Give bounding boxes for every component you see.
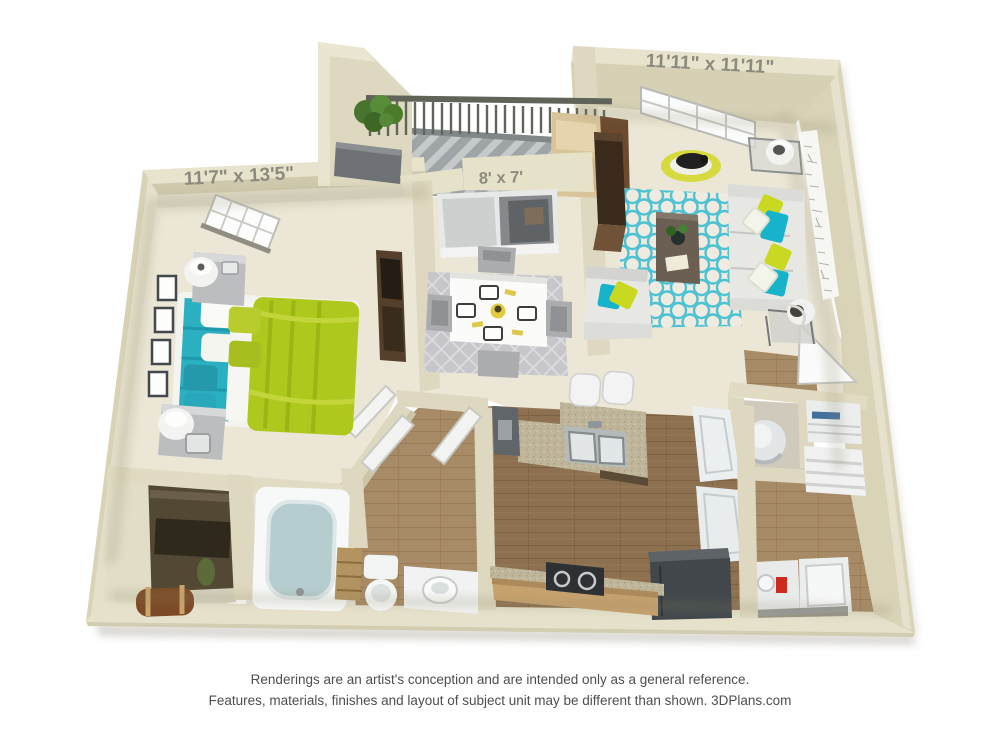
svg-text:Renderings are an artist's con: Renderings are an artist's conception an… — [251, 672, 750, 687]
svg-text:Features, materials, finishes: Features, materials, finishes and layout… — [209, 693, 792, 708]
svg-text:8' x 7': 8' x 7' — [478, 168, 523, 188]
